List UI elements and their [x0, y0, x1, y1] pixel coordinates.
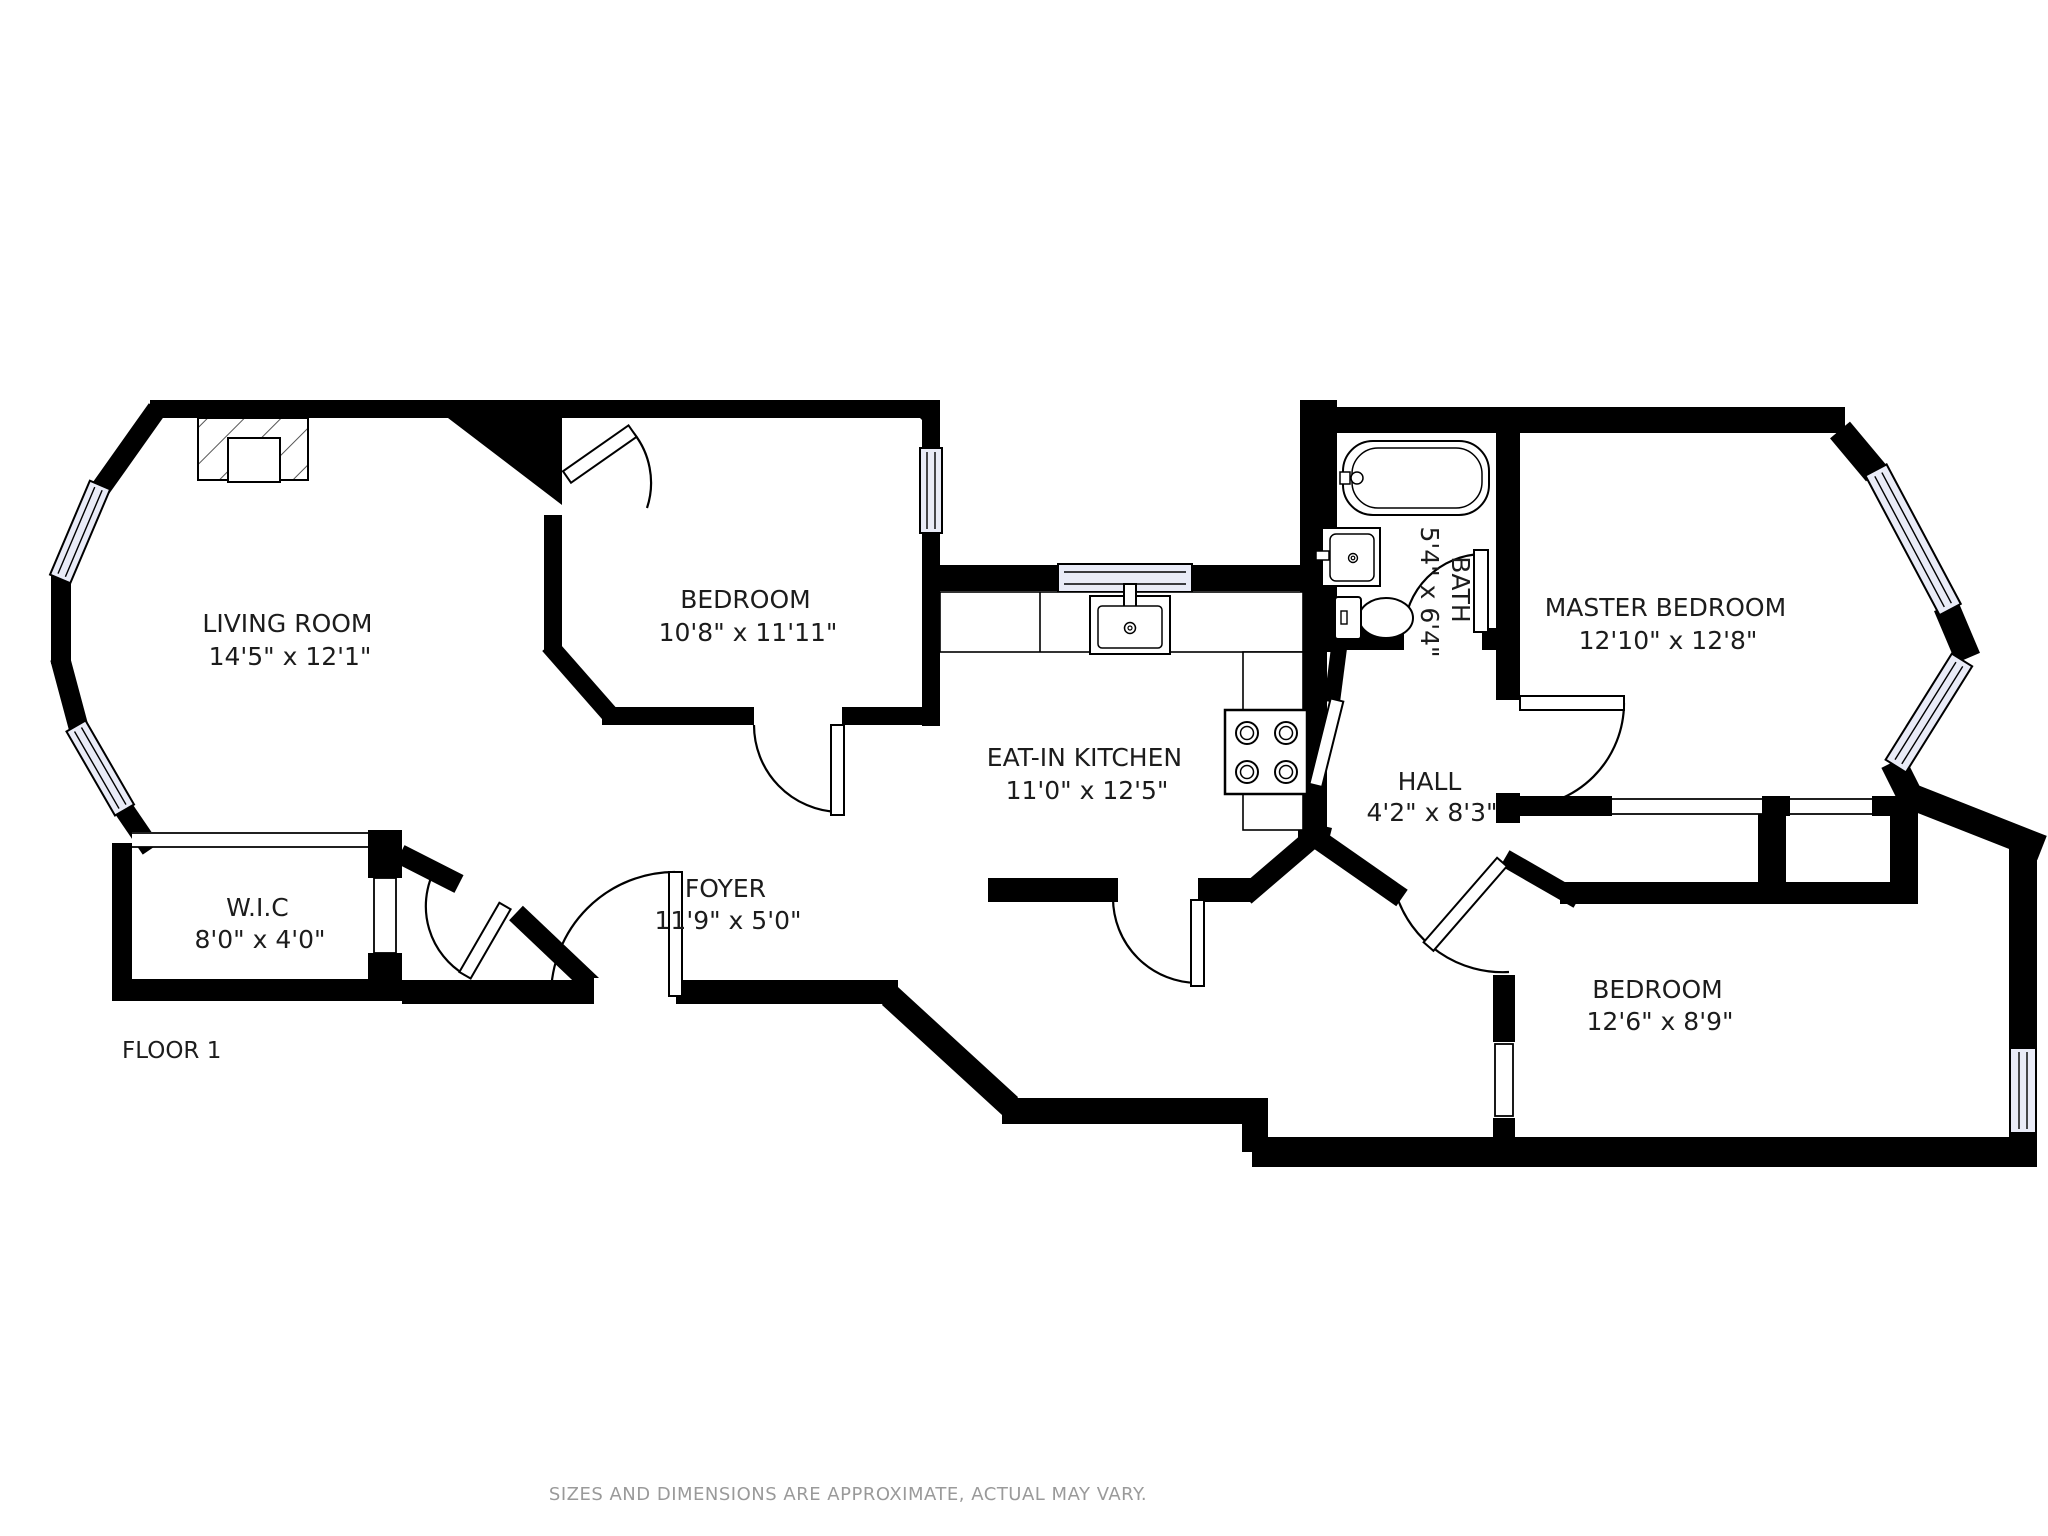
wall [516, 913, 594, 987]
wall [1332, 648, 1339, 702]
sliding-door [374, 878, 396, 953]
wall [1300, 407, 1845, 433]
wall [890, 996, 1010, 1106]
wall [1496, 433, 1520, 700]
cased-opening [132, 832, 368, 847]
room-label-kitchen: EAT-IN KITCHEN 11'0" x 12'5" [987, 743, 1187, 805]
floor-label: FLOOR 1 [122, 1038, 221, 1064]
closet-opening [1790, 798, 1872, 814]
wall [1840, 430, 1876, 473]
wall [1946, 606, 1968, 658]
wall [1496, 793, 1520, 823]
window [66, 721, 134, 816]
window [2010, 1048, 2036, 1133]
door [563, 425, 651, 508]
bathtub [1340, 441, 1489, 515]
door [754, 705, 844, 815]
disclaimer-text: SIZES AND DIMENSIONS ARE APPROXIMATE, AC… [549, 1484, 1147, 1505]
wall [368, 830, 402, 878]
door [1496, 696, 1624, 807]
bathroom-sink [1316, 528, 1380, 586]
wall [1900, 792, 2042, 848]
closet-opening [1612, 798, 1762, 814]
room-label-bedroom-1: BEDROOM 10'8" x 11'11" [659, 585, 838, 647]
wall [101, 409, 157, 488]
room-label-living-room: LIVING ROOM 14'5" x 12'1" [202, 609, 377, 671]
door [1396, 858, 1509, 972]
window [1886, 654, 1973, 773]
window [50, 481, 110, 583]
wall [1890, 796, 1918, 904]
fireplace [198, 418, 308, 482]
window [920, 448, 942, 533]
wall [60, 658, 79, 729]
window [1865, 464, 1960, 615]
wall-flare [902, 400, 940, 438]
floor-plan-canvas: LIVING ROOM 14'5" x 12'1" BEDROOM 10'8" … [0, 0, 2048, 1536]
stove [1225, 710, 1307, 794]
door [1113, 878, 1204, 986]
room-label-bedroom-2: BEDROOM 12'6" x 8'9" [1587, 975, 1734, 1036]
room-label-master-bedroom: MASTER BEDROOM 12'10" x 12'8" [1545, 593, 1792, 655]
floor-plan-page: LIVING ROOM 14'5" x 12'1" BEDROOM 10'8" … [0, 0, 2048, 1536]
wall [368, 953, 402, 1001]
wall-chamfer [448, 418, 562, 505]
wall [1300, 400, 1337, 652]
door [426, 871, 511, 979]
wall [1316, 838, 1402, 898]
wall-opening [1495, 1044, 1513, 1116]
room-label-wic: W.I.C 8'0" x 4'0" [194, 893, 325, 954]
room-label-hall: HALL 4'2" x 8'3" [1366, 767, 1497, 827]
toilet [1335, 597, 1413, 639]
